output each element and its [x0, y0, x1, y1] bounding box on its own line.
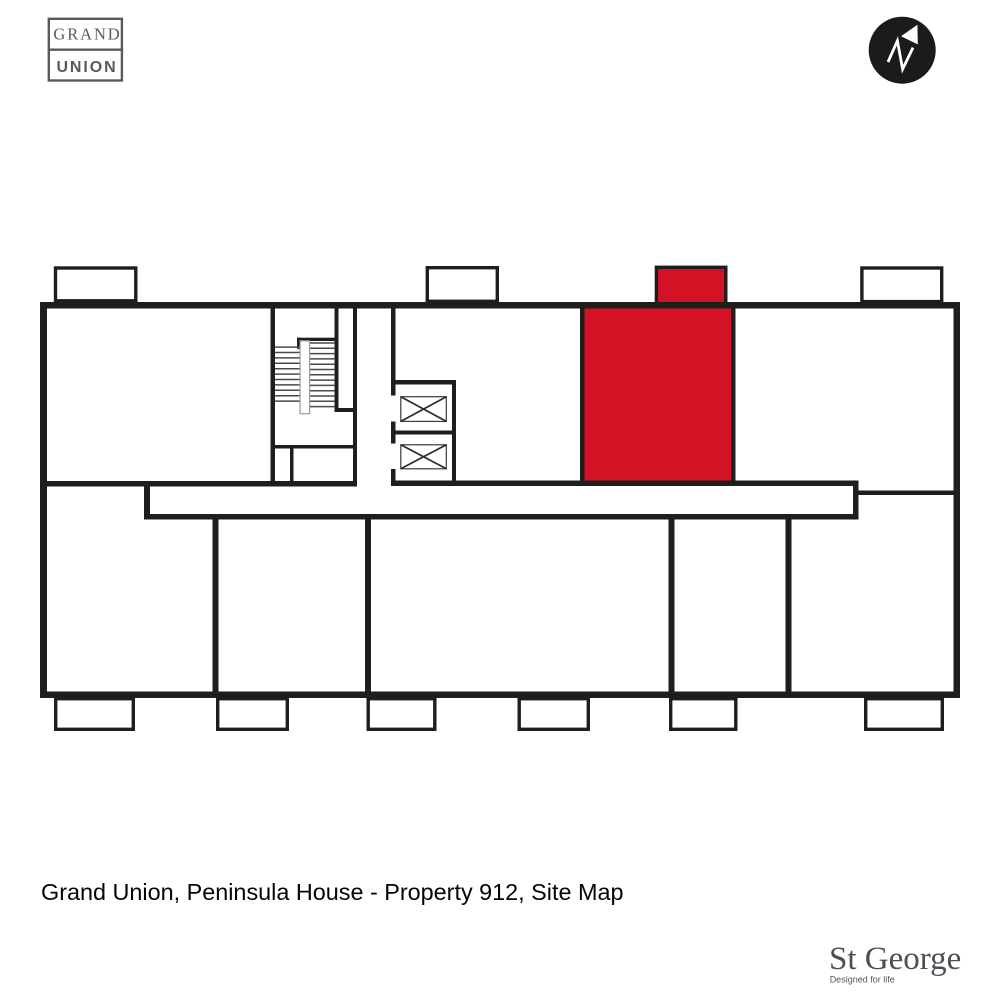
svg-text:GRAND: GRAND: [53, 25, 121, 44]
svg-text:UNION: UNION: [56, 59, 117, 76]
svg-text:St George: St George: [829, 941, 961, 977]
svg-text:Designed for life: Designed for life: [830, 975, 895, 985]
svg-text:Grand Union, Peninsula House -: Grand Union, Peninsula House - Property …: [41, 879, 623, 905]
